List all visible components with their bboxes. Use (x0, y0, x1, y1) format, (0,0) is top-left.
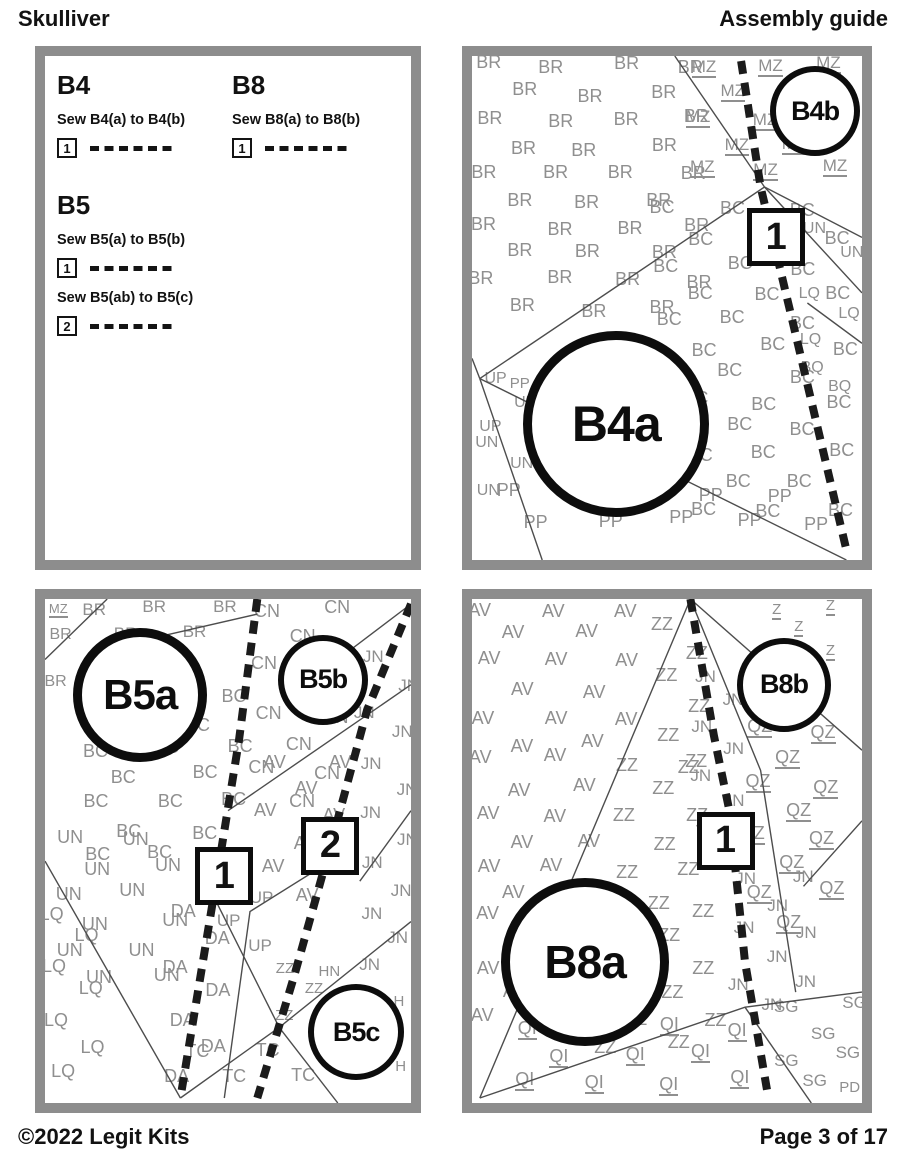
seam-step-number: 2 (57, 316, 77, 336)
copyright-label: ©2022 Legit Kits (18, 1124, 190, 1150)
dashed-line-sample (90, 324, 176, 329)
piece-label-b5a: B5a (73, 628, 207, 762)
instruction-group-title: B8 (232, 70, 360, 101)
seam-step-legend: 1 (57, 257, 193, 279)
page-number-label: Page 3 of 17 (760, 1124, 888, 1150)
seam-step-box: 1 (697, 812, 755, 870)
dashed-line-sample (90, 146, 176, 151)
piece-label-b8a: B8a (501, 878, 669, 1046)
sew-instruction-text: Sew B8(a) to B8(b) (232, 112, 360, 128)
instruction-group-b5: B5Sew B5(a) to B5(b)1Sew B5(ab) to B5(c)… (57, 190, 193, 337)
diagram-panel-b8: AVAVAVAVAVAVAVAVAVAVAVAVAVAVAVAVAVAVAVAV… (462, 589, 872, 1113)
seam-step-legend: 1 (57, 137, 185, 159)
diagram-panel-b5: MZBRBRBRBRBRBRBRBCBCBCBCBCBCBCBCBCBCBCBC… (35, 589, 421, 1113)
seam-step-box: 1 (747, 208, 805, 266)
instruction-group-title: B4 (57, 70, 185, 101)
sew-instruction-text: Sew B4(a) to B4(b) (57, 112, 185, 128)
piece-label-b5c: B5c (308, 984, 404, 1080)
piece-label-b4b: B4b (770, 66, 860, 156)
instruction-group-b4: B4Sew B4(a) to B4(b)1 (57, 70, 185, 159)
assembly-guide-label: Assembly guide (719, 6, 888, 32)
seam-step-box: 1 (195, 847, 253, 905)
sew-instruction-text: Sew B5(a) to B5(b) (57, 232, 193, 248)
document-title: Skulliver (18, 6, 110, 32)
instruction-group-b8: B8Sew B8(a) to B8(b)1 (232, 70, 360, 159)
sew-instruction-text: Sew B5(ab) to B5(c) (57, 290, 193, 306)
diagram-b4-canvas: BRBRBRBRBRBRBRBRBRBRBRBRBRBRBRBRBRBRBRBR… (472, 56, 862, 560)
seam-step-box: 2 (301, 817, 359, 875)
piece-label-b8b: B8b (737, 638, 831, 732)
instruction-group-title: B5 (57, 190, 193, 221)
assembly-guide-page: Skulliver Assembly guide B4Sew B4(a) to … (0, 0, 906, 1166)
dashed-line-sample (90, 266, 176, 271)
seam-step-number: 1 (232, 138, 252, 158)
seam-step-number: 1 (57, 138, 77, 158)
diagram-b5-canvas: MZBRBRBRBRBRBRBRBCBCBCBCBCBCBCBCBCBCBCBC… (45, 599, 411, 1103)
dashed-line-sample (265, 146, 351, 151)
instruction-canvas: B4Sew B4(a) to B4(b)1B8Sew B8(a) to B8(b… (45, 56, 411, 560)
seam-step-legend: 1 (232, 137, 360, 159)
piece-label-b5b: B5b (278, 635, 368, 725)
instruction-panel: B4Sew B4(a) to B4(b)1B8Sew B8(a) to B8(b… (35, 46, 421, 570)
seam-step-number: 1 (57, 258, 77, 278)
seam-step-legend: 2 (57, 315, 193, 337)
diagram-panel-b4: BRBRBRBRBRBRBRBRBRBRBRBRBRBRBRBRBRBRBRBR… (462, 46, 872, 570)
diagram-b8-canvas: AVAVAVAVAVAVAVAVAVAVAVAVAVAVAVAVAVAVAVAV… (472, 599, 862, 1103)
piece-label-b4a: B4a (523, 331, 709, 517)
